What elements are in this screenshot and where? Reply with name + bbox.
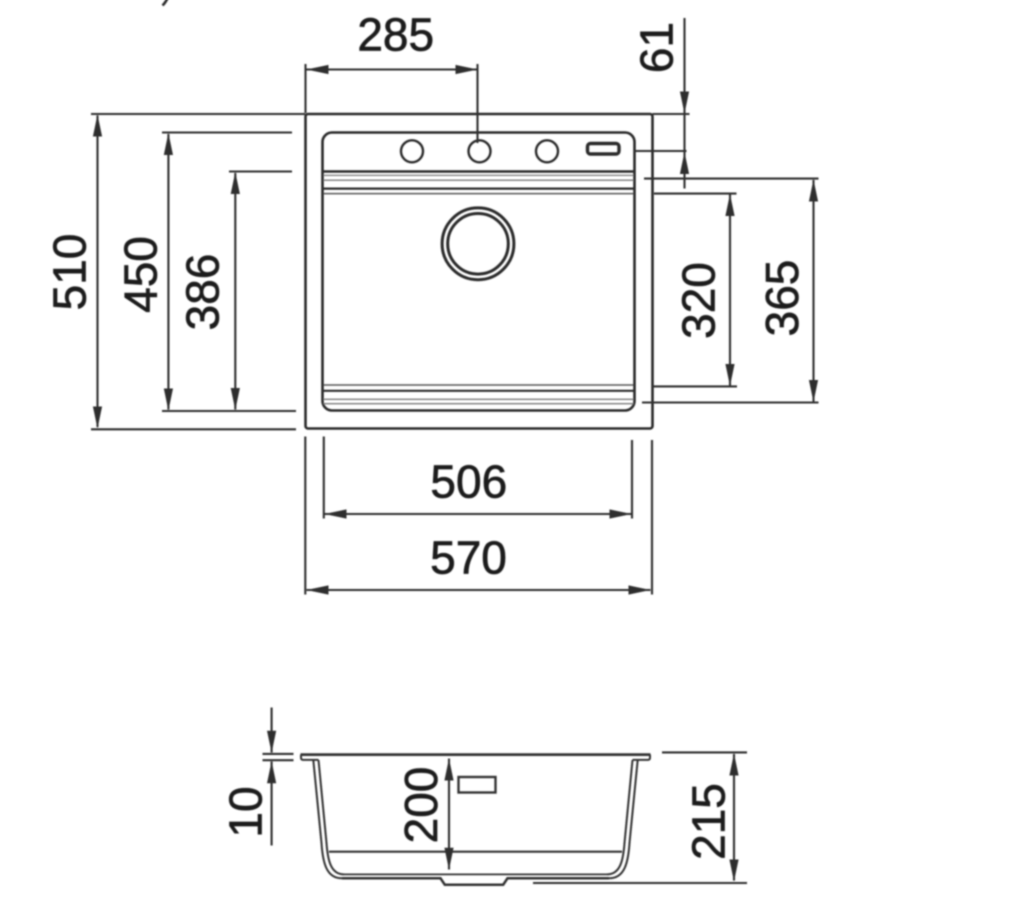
svg-text:285: 285: [357, 9, 434, 61]
svg-text:320: 320: [673, 262, 725, 339]
svg-text:510: 510: [44, 234, 96, 311]
svg-text:365: 365: [756, 260, 808, 337]
svg-text:386: 386: [176, 254, 228, 331]
svg-text:10: 10: [220, 786, 272, 837]
svg-text:506: 506: [430, 456, 507, 508]
svg-text:61: 61: [631, 22, 683, 73]
svg-text:450: 450: [114, 236, 166, 313]
svg-text:200: 200: [395, 767, 447, 844]
svg-text:215: 215: [683, 783, 735, 860]
svg-text:570: 570: [430, 532, 507, 584]
